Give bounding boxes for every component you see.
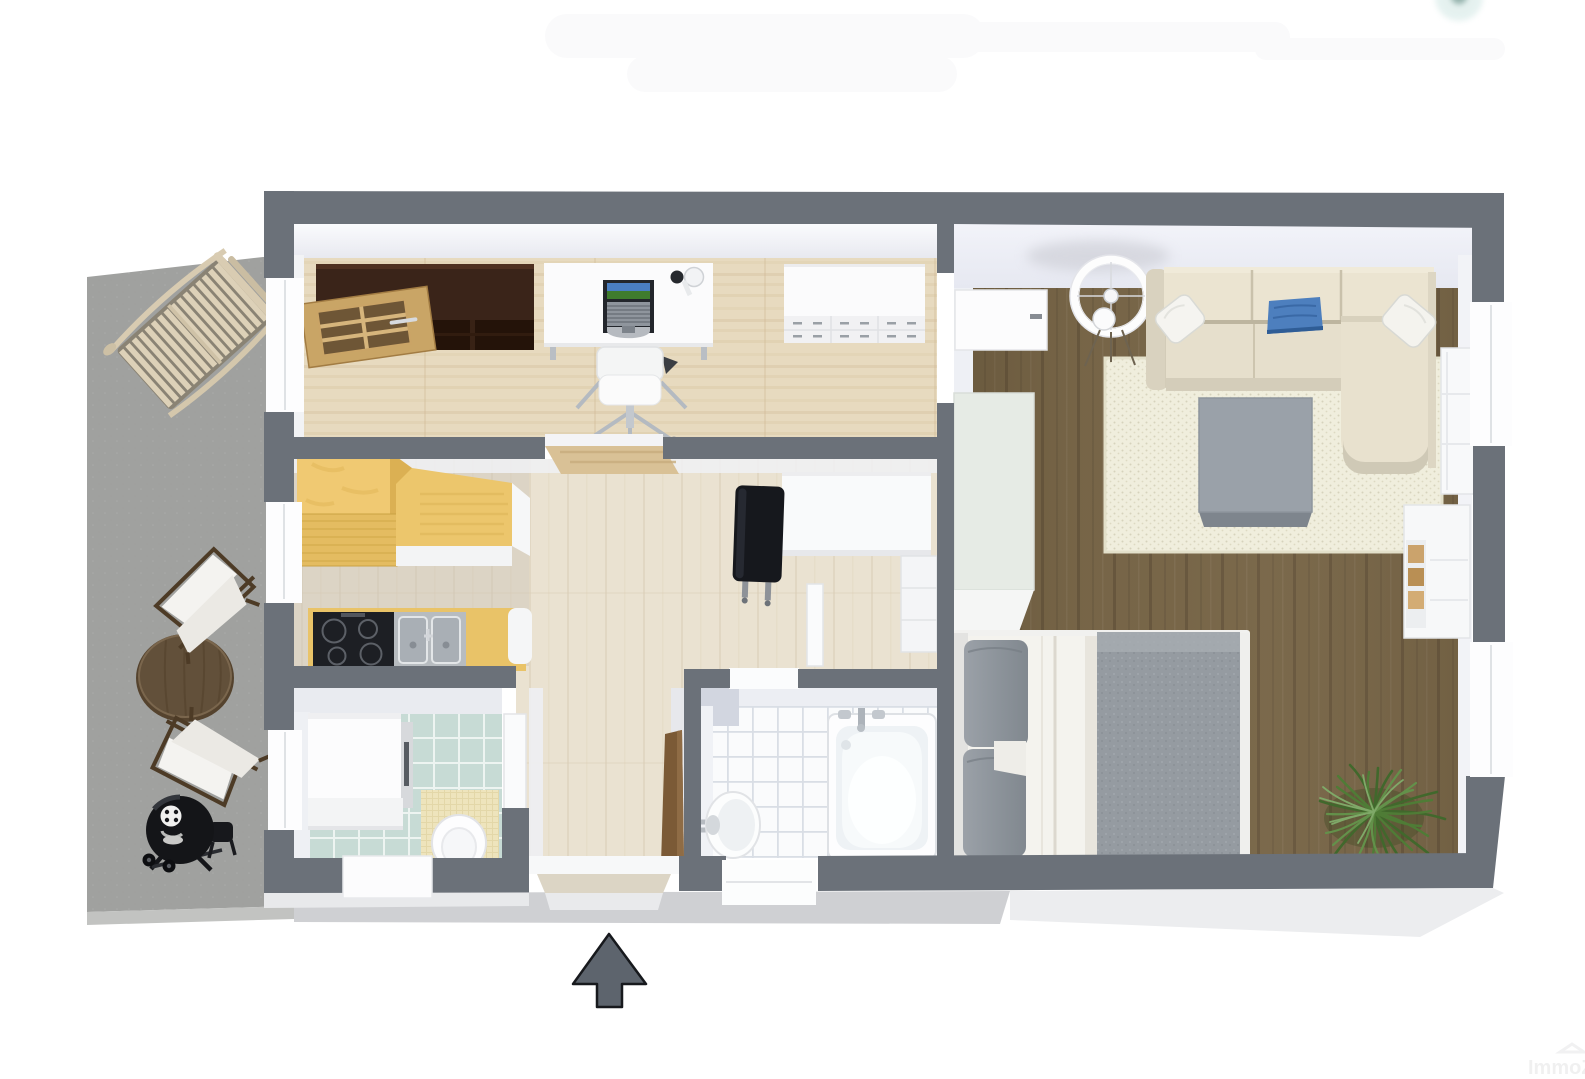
svg-text:ImmoZ: ImmoZ — [1528, 1057, 1585, 1079]
